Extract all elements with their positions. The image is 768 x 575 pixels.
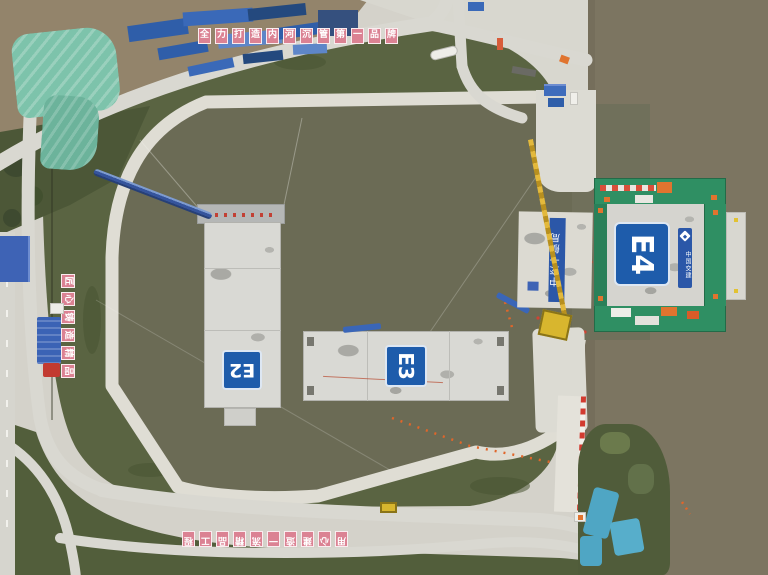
- orange-fitting: [598, 208, 603, 213]
- blue-container: [544, 84, 566, 96]
- corner-fitting: [307, 386, 314, 395]
- orange-equipment: [687, 311, 699, 319]
- steel-stack: [243, 50, 284, 64]
- cccc-banner: 中国交建: [678, 228, 692, 288]
- gantry-striped-beam: [600, 185, 656, 191]
- steel-stack: [187, 57, 234, 76]
- truck-cab: [43, 363, 60, 377]
- cccc-banner-text: 中国交建: [678, 243, 692, 287]
- small-crane: [497, 38, 503, 50]
- orange-dot: [578, 515, 583, 520]
- corner-fitting: [307, 337, 314, 346]
- orange-equipment: [604, 197, 610, 202]
- caisson-e2-tail: [224, 408, 256, 426]
- yellow-loader: [380, 502, 397, 513]
- slogan-sign: 流: [250, 531, 263, 547]
- corner-fitting: [497, 337, 504, 346]
- grass-blob: [628, 464, 654, 494]
- steel-stack: [293, 43, 327, 55]
- dock-deck-bottom: [594, 302, 726, 332]
- orange-fitting: [713, 210, 718, 215]
- slogan-sign: 心: [318, 531, 331, 547]
- gantry-trolley: [657, 182, 672, 193]
- caisson-e2: E2: [204, 222, 281, 408]
- slogan-sign: 工: [199, 531, 212, 547]
- e4-floating-dock: E4 中国交建: [594, 178, 726, 332]
- orange-equipment: [711, 195, 717, 200]
- slogan-bottom: 用 心 建 造 一 流 精 品 工 程: [182, 531, 348, 547]
- slogan-sign: 造: [249, 28, 262, 44]
- upper-quay-pier: [536, 90, 596, 192]
- slogan-sign: 内: [266, 28, 279, 44]
- caisson-e2-text: E2: [229, 359, 255, 381]
- slogan-sign: 力: [215, 28, 228, 44]
- deck-cabin: [635, 195, 653, 203]
- blue-tarp: [609, 518, 644, 557]
- deck-container: [611, 308, 631, 317]
- slogan-top: 全 力 打 造 内 河 沉 管 第 一 品 牌: [198, 28, 398, 44]
- slogan-sign: 打: [232, 28, 245, 44]
- caisson-e3-text: E3: [394, 352, 418, 380]
- blue-shed: [0, 236, 30, 282]
- blue-tarp-small: [527, 282, 538, 291]
- small-hut: [574, 512, 586, 522]
- vegetation-bottom-right: [578, 424, 670, 575]
- panel-joint: [204, 330, 281, 331]
- slogan-sign: 全: [198, 28, 211, 44]
- casting-basin-water: [112, 97, 581, 498]
- corner-fitting: [497, 386, 504, 395]
- white-van: [570, 92, 578, 105]
- slogan-sign: 造: [284, 531, 297, 547]
- slogan-sign: 牌: [385, 28, 398, 44]
- orange-fitting: [713, 294, 718, 299]
- slogan-sign: 第: [334, 28, 347, 44]
- caisson-e2-label: E2: [222, 350, 262, 390]
- road-wharf-vertical: [458, 0, 462, 66]
- slogan-sign: 精: [233, 531, 246, 547]
- yellow-marker: [734, 289, 738, 293]
- dock-wall-left: [594, 204, 607, 306]
- panel-joint: [204, 268, 281, 269]
- panel-joint: [449, 331, 450, 401]
- caisson-e4-text: E4: [625, 233, 660, 274]
- cap-red-markings: [206, 213, 276, 217]
- blue-container: [468, 2, 484, 11]
- steel-stack: [248, 3, 307, 21]
- steel-stack: [183, 8, 254, 27]
- slogan-sign: 一: [351, 28, 364, 44]
- slogan-sign: 造: [61, 328, 75, 342]
- deck-container: [635, 316, 659, 325]
- blue-tarp: [580, 536, 602, 566]
- slogan-sign: 管: [317, 28, 330, 44]
- slogan-sign: 品: [216, 531, 229, 547]
- slogan-sign: 程: [182, 531, 195, 547]
- aerial-photo: E2 E3 中交一航局: [0, 0, 768, 575]
- panel-joint: [367, 331, 368, 401]
- white-container: [50, 303, 64, 314]
- dock-wall-right: [704, 204, 726, 306]
- slogan-sign: 河: [283, 28, 296, 44]
- slogan-sign: 品: [61, 364, 75, 378]
- caisson-e3: E3: [303, 331, 509, 401]
- yellow-marker: [734, 218, 738, 222]
- blue-container: [548, 98, 564, 107]
- slogan-sign: 用: [335, 531, 348, 547]
- orange-fitting: [598, 296, 603, 301]
- slogan-sign: 品: [368, 28, 381, 44]
- orange-equipment: [661, 307, 677, 316]
- grass-blob: [600, 432, 630, 454]
- caisson-e4-label: E4: [614, 222, 670, 286]
- materials-yard: [128, 4, 364, 96]
- slogan-sign: 一: [267, 531, 280, 547]
- blue-truck-trailer: [37, 317, 61, 364]
- steel-stack: [127, 18, 189, 42]
- slogan-sign: 沉: [300, 28, 313, 44]
- caisson-e4-deck: E4 中国交建: [607, 204, 704, 306]
- slogan-sign: 匠: [61, 274, 75, 288]
- slogan-sign: 精: [61, 346, 75, 360]
- cccc-logo-icon: [679, 230, 690, 241]
- side-pontoon: [726, 212, 746, 300]
- caisson-e3-label: E3: [385, 345, 427, 387]
- cccc-logo-center: [683, 234, 687, 238]
- slogan-left: 匠 心 铸 造 精 品: [61, 274, 75, 378]
- slogan-sign: 建: [301, 531, 314, 547]
